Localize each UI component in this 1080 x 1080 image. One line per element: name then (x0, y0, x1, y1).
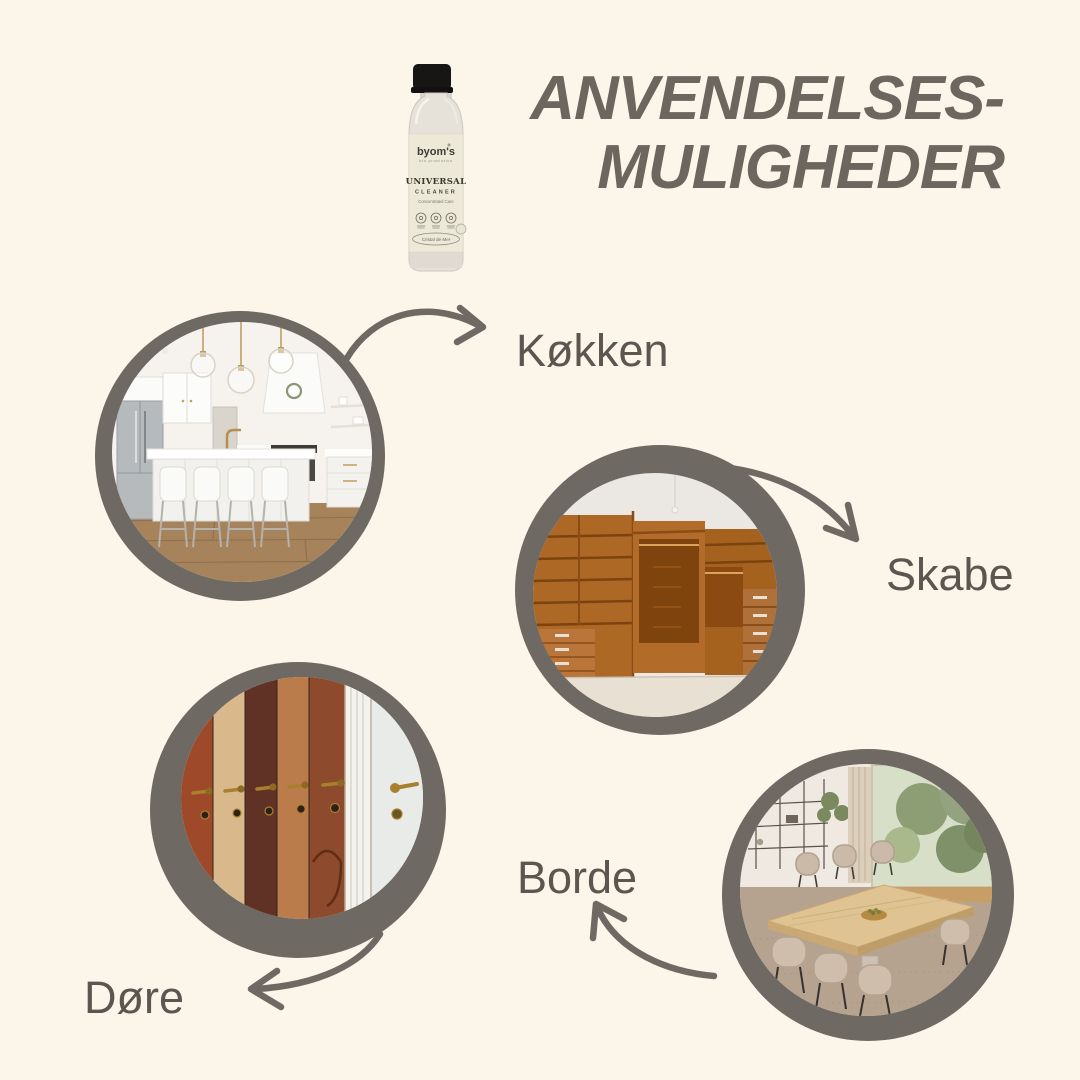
kitchen-label: Køkken (516, 326, 669, 376)
tables-medallion (722, 749, 1014, 1041)
arrow-to-tables-label (593, 904, 714, 976)
leaf-icon (448, 144, 451, 147)
doors-medallion (150, 662, 446, 958)
tables-label: Borde (517, 853, 637, 903)
fruit-bowl (861, 910, 887, 921)
kitchen-photo (112, 322, 372, 583)
cabinets-medallion (515, 445, 805, 735)
label-badge (456, 224, 466, 234)
infographic-canvas: ANVENDELSES- MULIGHEDER byom's bio probi… (0, 0, 1080, 1080)
page-title-line1: ANVENDELSES- (530, 64, 1004, 133)
kitchen-medallion (95, 311, 385, 601)
page-title: ANVENDELSES- MULIGHEDER (530, 64, 1004, 202)
bottle-product-type: CLEANER (415, 190, 457, 196)
bottle-variant: Cristal de Mer (422, 237, 451, 242)
doors-photo (181, 677, 423, 919)
product-bottle: byom's bio probiotics UNIVERSAL CLEANER … (396, 62, 476, 274)
bottle-cap (413, 64, 451, 90)
cabinets-photo (533, 473, 777, 717)
bottle-subtitle: Concentrated Care (418, 199, 454, 204)
bottle-product-name: UNIVERSAL (406, 177, 467, 187)
doors-label: Døre (84, 973, 184, 1023)
bottle-tagline: bio probiotics (419, 159, 453, 163)
bottle-brand: byom's (417, 146, 455, 158)
page-title-line2: MULIGHEDER (530, 133, 1004, 202)
cabinets-label: Skabe (886, 550, 1014, 600)
